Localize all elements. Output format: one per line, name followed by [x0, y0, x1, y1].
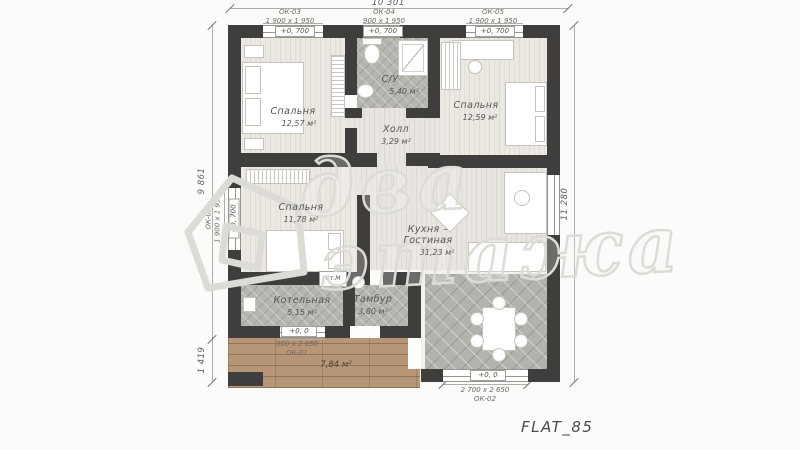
- watermark-house-logo: [178, 168, 314, 296]
- wall-segment: [428, 155, 547, 168]
- elevation-mark: +0, 700: [363, 26, 403, 37]
- room-label-hall: Холл 3,29 м²: [351, 124, 441, 146]
- toilet: [364, 44, 380, 64]
- wall-segment: [421, 369, 443, 382]
- wall-segment: [228, 25, 241, 188]
- elevation-mark: +0, 700: [275, 26, 315, 37]
- toilet-tank: [362, 38, 382, 45]
- pillow: [245, 66, 261, 94]
- dining-table: [482, 307, 516, 351]
- dimension-line: [443, 384, 528, 385]
- room-label-bathroom: С/У 5,40 м²: [355, 74, 425, 96]
- sofa: [468, 242, 546, 272]
- wall-segment: [325, 326, 350, 338]
- pouf: [352, 276, 365, 289]
- window-label-ok04: ОК-04 900 х 1 950: [344, 8, 424, 25]
- kitchen-sink: [514, 190, 530, 206]
- nightstand: [244, 138, 264, 150]
- room-label-bedroom2: Спальня 12,59 м²: [431, 100, 521, 122]
- pillow: [535, 86, 545, 112]
- window-right: [547, 175, 560, 235]
- washing-machine-box: Ст.М: [319, 271, 347, 287]
- wall-segment: [228, 326, 280, 338]
- elevation-mark: +0, 700: [475, 26, 515, 37]
- door-label-ok01: 900 х 2 650 ОК-01: [257, 340, 337, 357]
- desk-chair: [468, 60, 482, 74]
- dining-chair: [514, 334, 528, 348]
- dimension-line: [574, 25, 575, 382]
- dining-chair: [492, 296, 506, 310]
- deck-patio-gap: [408, 338, 421, 369]
- pillow: [535, 116, 545, 142]
- room-label-kitchen-living: Кухня – Гостиная 31,23 м²: [383, 224, 473, 257]
- window-label-ok02: 2 700 х 2 650 ОК-02: [445, 386, 525, 403]
- room-label-terrace: 7,84 м²: [306, 360, 366, 370]
- dining-chair: [470, 312, 484, 326]
- nightstand: [244, 45, 264, 58]
- wall-segment: [528, 369, 560, 382]
- wall-segment: [357, 195, 370, 285]
- room-label-bedroom1: Спальня 12,57 м²: [248, 106, 338, 128]
- dim-right-label: 11 280: [560, 176, 570, 232]
- desk: [452, 40, 514, 60]
- dim-top-label: 10 301: [372, 0, 405, 8]
- wardrobe: [441, 42, 461, 90]
- dining-chair: [470, 334, 484, 348]
- entrance-door-gap: [350, 326, 380, 338]
- wall-segment: [345, 108, 362, 118]
- elevation-mark: +0, 0: [470, 370, 506, 381]
- pillow: [328, 252, 341, 269]
- dining-chair: [514, 312, 528, 326]
- wall-segment: [228, 372, 263, 386]
- wall-segment: [400, 25, 466, 38]
- dining-chair: [492, 348, 506, 362]
- wall-segment: [547, 235, 560, 382]
- wall-segment: [241, 153, 377, 167]
- pillow: [328, 233, 341, 250]
- floor-plan: 10 301 9 861 1 419 11 280 ОК-03 1 900 х …: [0, 0, 800, 450]
- elevation-mark: +0, 0: [281, 326, 317, 337]
- room-label-bedroom3: Спальня 11,78 м²: [256, 202, 346, 224]
- boiler: [243, 297, 256, 312]
- room-label-vestibule: Тамбур 3,80 м²: [330, 294, 416, 316]
- wall-segment: [547, 25, 560, 175]
- window-label-ok03: ОК-03 1 900 х 1 950: [250, 8, 330, 25]
- window-label-ok05: ОК-05 1 900 х 1 950: [453, 8, 533, 25]
- shower: [398, 40, 428, 76]
- dim-left-terrace-label: 1 419: [197, 332, 207, 388]
- plan-code-label: FLAT_85: [521, 418, 593, 436]
- dimension-line: [212, 339, 213, 382]
- wall-segment: [323, 25, 363, 38]
